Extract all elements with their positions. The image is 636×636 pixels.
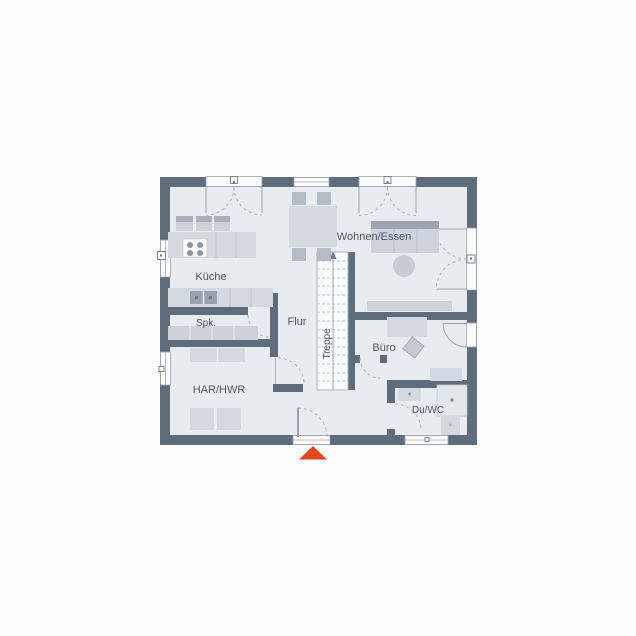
terrace-door-office bbox=[467, 323, 477, 347]
room-label-office: Büro bbox=[372, 342, 395, 354]
wall-stairs bbox=[348, 252, 355, 390]
dining-chair bbox=[292, 248, 306, 261]
wall-pantry-utility bbox=[170, 339, 278, 347]
room-label-stairs: Treppe bbox=[322, 328, 333, 360]
dryer bbox=[217, 408, 241, 430]
dining-chair bbox=[292, 192, 306, 205]
dining-chair bbox=[317, 192, 331, 205]
kitchen-appliances bbox=[176, 216, 230, 231]
dining-table bbox=[289, 206, 337, 247]
room-label-utility: HAR/HWR bbox=[193, 384, 246, 396]
kitchen-island bbox=[168, 232, 256, 258]
floorplan-canvas: Küche Spk. Flur Treppe Wohnen/Essen Büro… bbox=[0, 0, 636, 636]
floor-plan: Küche Spk. Flur Treppe Wohnen/Essen Büro… bbox=[0, 0, 636, 636]
room-label-living-dining: Wohnen/Essen bbox=[337, 231, 411, 243]
wall-wc-left bbox=[387, 388, 395, 403]
office-desk bbox=[387, 317, 427, 337]
coffee-table bbox=[393, 255, 415, 277]
room-label-pantry: Spk. bbox=[196, 318, 216, 329]
room-label-shower-wc: Du/WC bbox=[412, 405, 444, 416]
office-shelf bbox=[430, 368, 462, 381]
stairs bbox=[317, 252, 348, 391]
wall-kitchen-pantry bbox=[170, 307, 248, 315]
cooktop bbox=[183, 239, 207, 257]
entrance-arrow-icon bbox=[299, 446, 327, 460]
room-label-hallway: Flur bbox=[288, 316, 307, 328]
wall-utility-hall bbox=[273, 384, 303, 392]
kitchen-counter bbox=[168, 288, 273, 307]
room-label-kitchen: Küche bbox=[195, 271, 226, 283]
sideboard bbox=[367, 301, 452, 311]
washer bbox=[190, 408, 214, 430]
dining-chair bbox=[317, 248, 331, 261]
